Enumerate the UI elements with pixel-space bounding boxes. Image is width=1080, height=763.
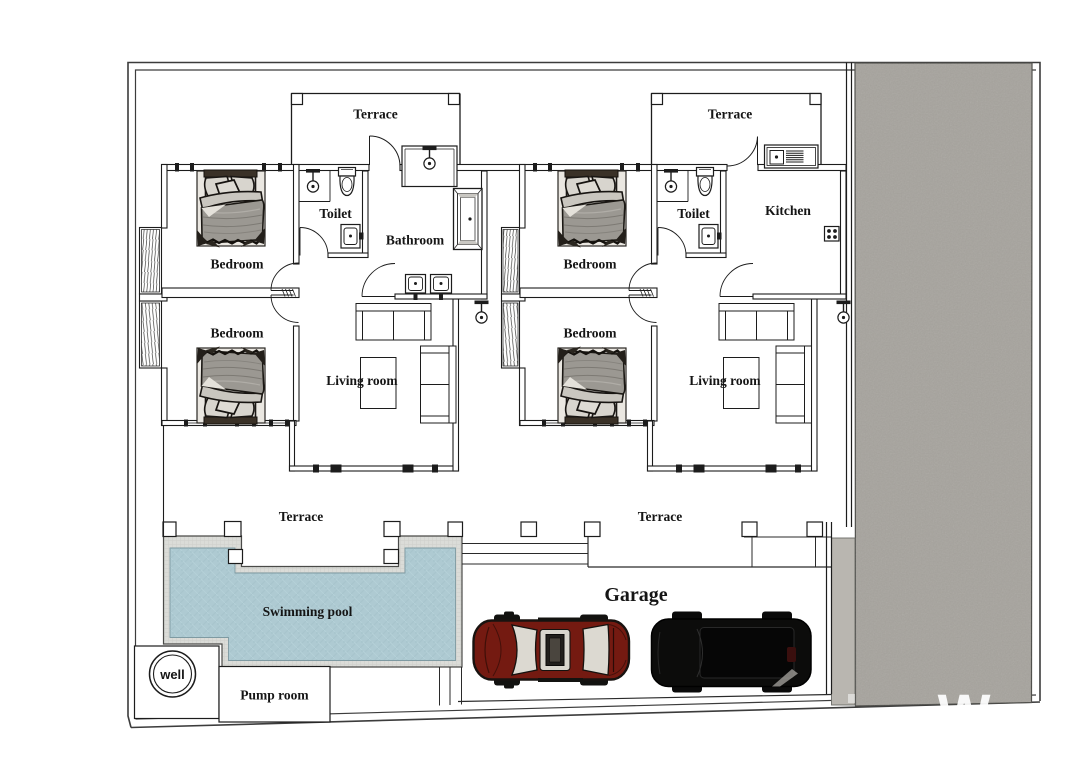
svg-text:Toilet: Toilet [319,206,352,221]
svg-text:Toilet: Toilet [677,206,710,221]
svg-text:Terrace: Terrace [279,509,323,524]
svg-text:Bedroom: Bedroom [564,326,618,341]
svg-text:Bedroom: Bedroom [211,257,265,272]
svg-text:Living room: Living room [326,373,398,388]
svg-text:Kitchen: Kitchen [765,203,811,218]
svg-text:Terrace: Terrace [353,107,397,122]
svg-text:Bedroom: Bedroom [211,326,265,341]
svg-text:well: well [159,667,185,682]
svg-text:Terrace: Terrace [638,509,682,524]
svg-text:Bathroom: Bathroom [386,233,445,248]
svg-text:Bedroom: Bedroom [564,257,618,272]
svg-text:Garage: Garage [604,584,667,606]
svg-text:W: W [938,682,991,745]
svg-text:Terrace: Terrace [708,107,752,122]
svg-text:Swimming pool: Swimming pool [263,604,353,619]
svg-text:Living room: Living room [689,373,761,388]
svg-text:Pump room: Pump room [240,688,309,703]
